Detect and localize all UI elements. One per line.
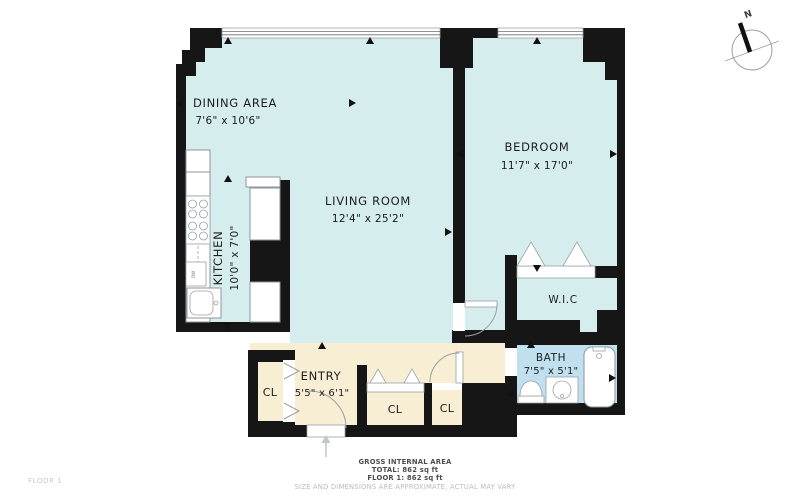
bath-door — [505, 348, 517, 376]
bath-sink-icon — [546, 377, 578, 403]
bedroom-fill — [465, 38, 617, 333]
dining-dims: 7'6" x 10'6" — [195, 115, 260, 127]
kitchen-dims: 10'0" x 7'0" — [229, 225, 241, 290]
dishwasher-icon: DW — [186, 262, 206, 286]
windows — [222, 28, 583, 38]
wall-stub-entry — [357, 365, 367, 425]
compass: N — [725, 9, 779, 70]
window-living — [222, 28, 440, 38]
bath-name: BATH — [536, 352, 566, 364]
wall-partition-block — [250, 240, 280, 282]
footer-disclaimer: SIZE AND DIMENSIONS ARE APPROXIMATE, ACT… — [295, 483, 517, 491]
footer-total: TOTAL: 862 sq ft — [372, 466, 439, 474]
wall-bath-top — [505, 333, 625, 345]
kitchen-sink-icon — [187, 288, 221, 318]
wall-bottom-east — [345, 425, 517, 437]
closet-right-label: CL — [440, 402, 455, 415]
wall-bedroom-top-block — [440, 38, 473, 68]
entry-dims: 5'5" x 6'1" — [295, 388, 350, 399]
footer-floor: FLOOR 1: 862 sq ft — [367, 474, 443, 482]
dining-name: DINING AREA — [193, 96, 277, 110]
closet-left-label: CL — [263, 386, 278, 399]
floor-plan: DW — [0, 0, 800, 500]
kitchen-name: KITCHEN — [211, 231, 225, 286]
footer-gross-area: GROSS INTERNAL AREA — [358, 458, 452, 466]
wall-right — [617, 55, 625, 415]
wall-top-mid — [440, 28, 498, 38]
closet-center-label: CL — [388, 403, 403, 416]
wic-name: W.I.C — [548, 294, 577, 306]
wall-bottom-west — [248, 425, 307, 437]
wall-kitchen-bottom — [176, 322, 290, 332]
entry-arrow-icon — [322, 435, 331, 457]
living-dims: 12'4" x 25'2" — [332, 213, 404, 225]
wall-kitchen-partition — [280, 180, 290, 332]
bedroom-name: BEDROOM — [505, 140, 570, 154]
living-name: LIVING ROOM — [325, 194, 411, 208]
bedroom-dims: 11'7" x 17'0" — [501, 160, 573, 172]
wall-living-bedroom — [453, 38, 465, 305]
compass-north-label: N — [743, 9, 754, 21]
floor-label: FLOOR 1 — [28, 477, 62, 485]
bath-dims: 7'5" x 5'1" — [524, 366, 579, 377]
window-bedroom — [498, 28, 583, 38]
wall-closet-left-west — [248, 350, 258, 433]
wall-wic-step — [597, 310, 617, 332]
wall-wic-track-cap — [595, 266, 617, 278]
wall-bedroom-south — [452, 330, 505, 343]
main-room-fill — [186, 38, 453, 343]
stove-icon — [186, 196, 210, 244]
wall-stub-closets — [424, 383, 432, 425]
floor-plan-page: DW — [0, 0, 800, 500]
entry-name: ENTRY — [301, 369, 342, 383]
dishwasher-label: DW — [191, 271, 196, 278]
footer: GROSS INTERNAL AREA TOTAL: 862 sq ft FLO… — [295, 458, 517, 491]
compass-needle-icon — [740, 23, 750, 52]
